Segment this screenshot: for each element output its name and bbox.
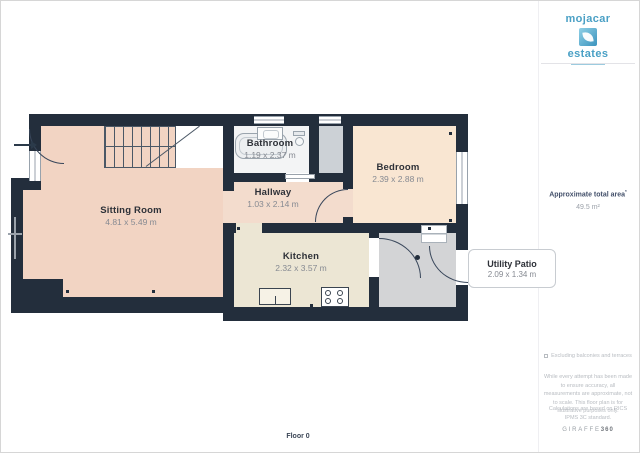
wall-segment <box>456 285 468 307</box>
entry-arrow-icon <box>31 141 37 149</box>
window-marker <box>8 233 22 235</box>
giraffe360-watermark: GIRAFFE360 <box>539 427 637 433</box>
room-name: Utility Patio <box>487 259 537 269</box>
wall-segment <box>11 297 233 313</box>
patio-step <box>421 225 447 243</box>
room-name: Hallway <box>247 187 299 198</box>
agency-logo: mojacar estates <box>553 13 623 65</box>
excluding-note: Excluding balconies and terraces <box>539 353 637 359</box>
sink-tap <box>275 296 276 304</box>
hob-burner <box>325 298 331 304</box>
room-dimensions: 1.19 x 2.37 m <box>244 150 296 160</box>
toilet-icon <box>295 137 304 146</box>
stairwell-void <box>176 126 223 168</box>
wall-segment <box>234 173 286 182</box>
watermark-suffix: 360 <box>601 427 614 433</box>
toilet-icon <box>293 131 305 136</box>
floor-label: Floor 0 <box>268 433 328 440</box>
hob-burner <box>325 290 331 296</box>
total-area-title-text: Approximate total area <box>549 191 625 198</box>
wall-segment <box>223 223 234 307</box>
wall-segment <box>369 277 379 321</box>
room-dimensions: 2.09 x 1.34 m <box>488 270 536 279</box>
doorway-opening <box>223 191 234 223</box>
wall-segment <box>11 279 63 297</box>
hob-burner <box>337 298 343 304</box>
wall-segment <box>223 114 234 191</box>
wall-segment <box>29 114 468 126</box>
window <box>319 116 341 124</box>
marker-dot <box>300 227 303 230</box>
leaf-icon <box>579 28 597 46</box>
bathroom-door-leaf <box>285 174 315 179</box>
sidebar-divider <box>538 1 539 453</box>
window <box>456 152 468 204</box>
total-area-value: 49.5 m² <box>539 204 637 211</box>
agency-name-bottom: estates <box>568 48 609 61</box>
excluding-note-text: Excluding balconies and terraces <box>551 353 632 359</box>
room-label-utility-patio: Utility Patio 2.09 x 1.34 m <box>468 249 556 288</box>
room-label-bathroom: Bathroom 1.19 x 2.37 m <box>244 138 296 160</box>
marker-dot <box>310 304 313 307</box>
staircase-line <box>104 146 176 147</box>
standard-note-text: Calculations are based on RICS IPMS 3C s… <box>543 405 633 422</box>
hob-icon <box>321 287 349 307</box>
marker-dot <box>428 227 431 230</box>
marker-dot <box>66 290 69 293</box>
patio-drain-dot <box>415 255 420 260</box>
closet-floor <box>319 126 343 173</box>
marker-dot <box>449 219 452 222</box>
wall-segment <box>369 223 379 238</box>
room-name: Kitchen <box>275 251 327 262</box>
marker-dot <box>237 227 240 230</box>
footnote-marker: * <box>625 189 627 194</box>
room-name: Bedroom <box>372 162 424 173</box>
room-dimensions: 4.81 x 5.49 m <box>100 217 162 227</box>
total-area-block: Approximate total area* 49.5 m² <box>539 189 637 211</box>
marker-dot <box>152 290 155 293</box>
kitchen-sink-icon <box>259 288 291 305</box>
square-icon <box>544 354 548 358</box>
logo-rule <box>571 64 605 65</box>
total-area-title: Approximate total area* <box>539 189 637 198</box>
room-name: Sitting Room <box>100 205 162 216</box>
watermark-brand: GIRAFFE <box>562 427 601 433</box>
entry-arrow-icon <box>14 144 31 146</box>
wall-segment <box>309 114 319 182</box>
room-label-hallway: Hallway 1.03 x 2.14 m <box>247 187 299 209</box>
marker-dot <box>346 170 349 173</box>
room-dimensions: 1.03 x 2.14 m <box>247 199 299 209</box>
room-label-bedroom: Bedroom 2.39 x 2.88 m <box>372 162 424 184</box>
staircase <box>104 126 176 168</box>
room-label-sitting-room: Sitting Room 4.81 x 5.49 m <box>100 205 162 227</box>
room-name: Bathroom <box>244 138 296 149</box>
marker-dot <box>449 132 452 135</box>
room-dimensions: 2.32 x 3.57 m <box>275 263 327 273</box>
agency-name-top: mojacar <box>566 13 611 26</box>
header-divider <box>541 63 635 64</box>
wall-segment <box>223 307 468 321</box>
window <box>29 151 41 181</box>
room-dimensions: 2.39 x 2.88 m <box>372 174 424 184</box>
hob-burner <box>337 290 343 296</box>
wall-segment <box>314 173 353 182</box>
room-label-kitchen: Kitchen 2.32 x 3.57 m <box>275 251 327 273</box>
floorplan-page: Sitting Room 4.81 x 5.49 m Bathroom 1.19… <box>0 0 640 453</box>
window-marker <box>14 217 16 259</box>
window <box>254 116 284 124</box>
